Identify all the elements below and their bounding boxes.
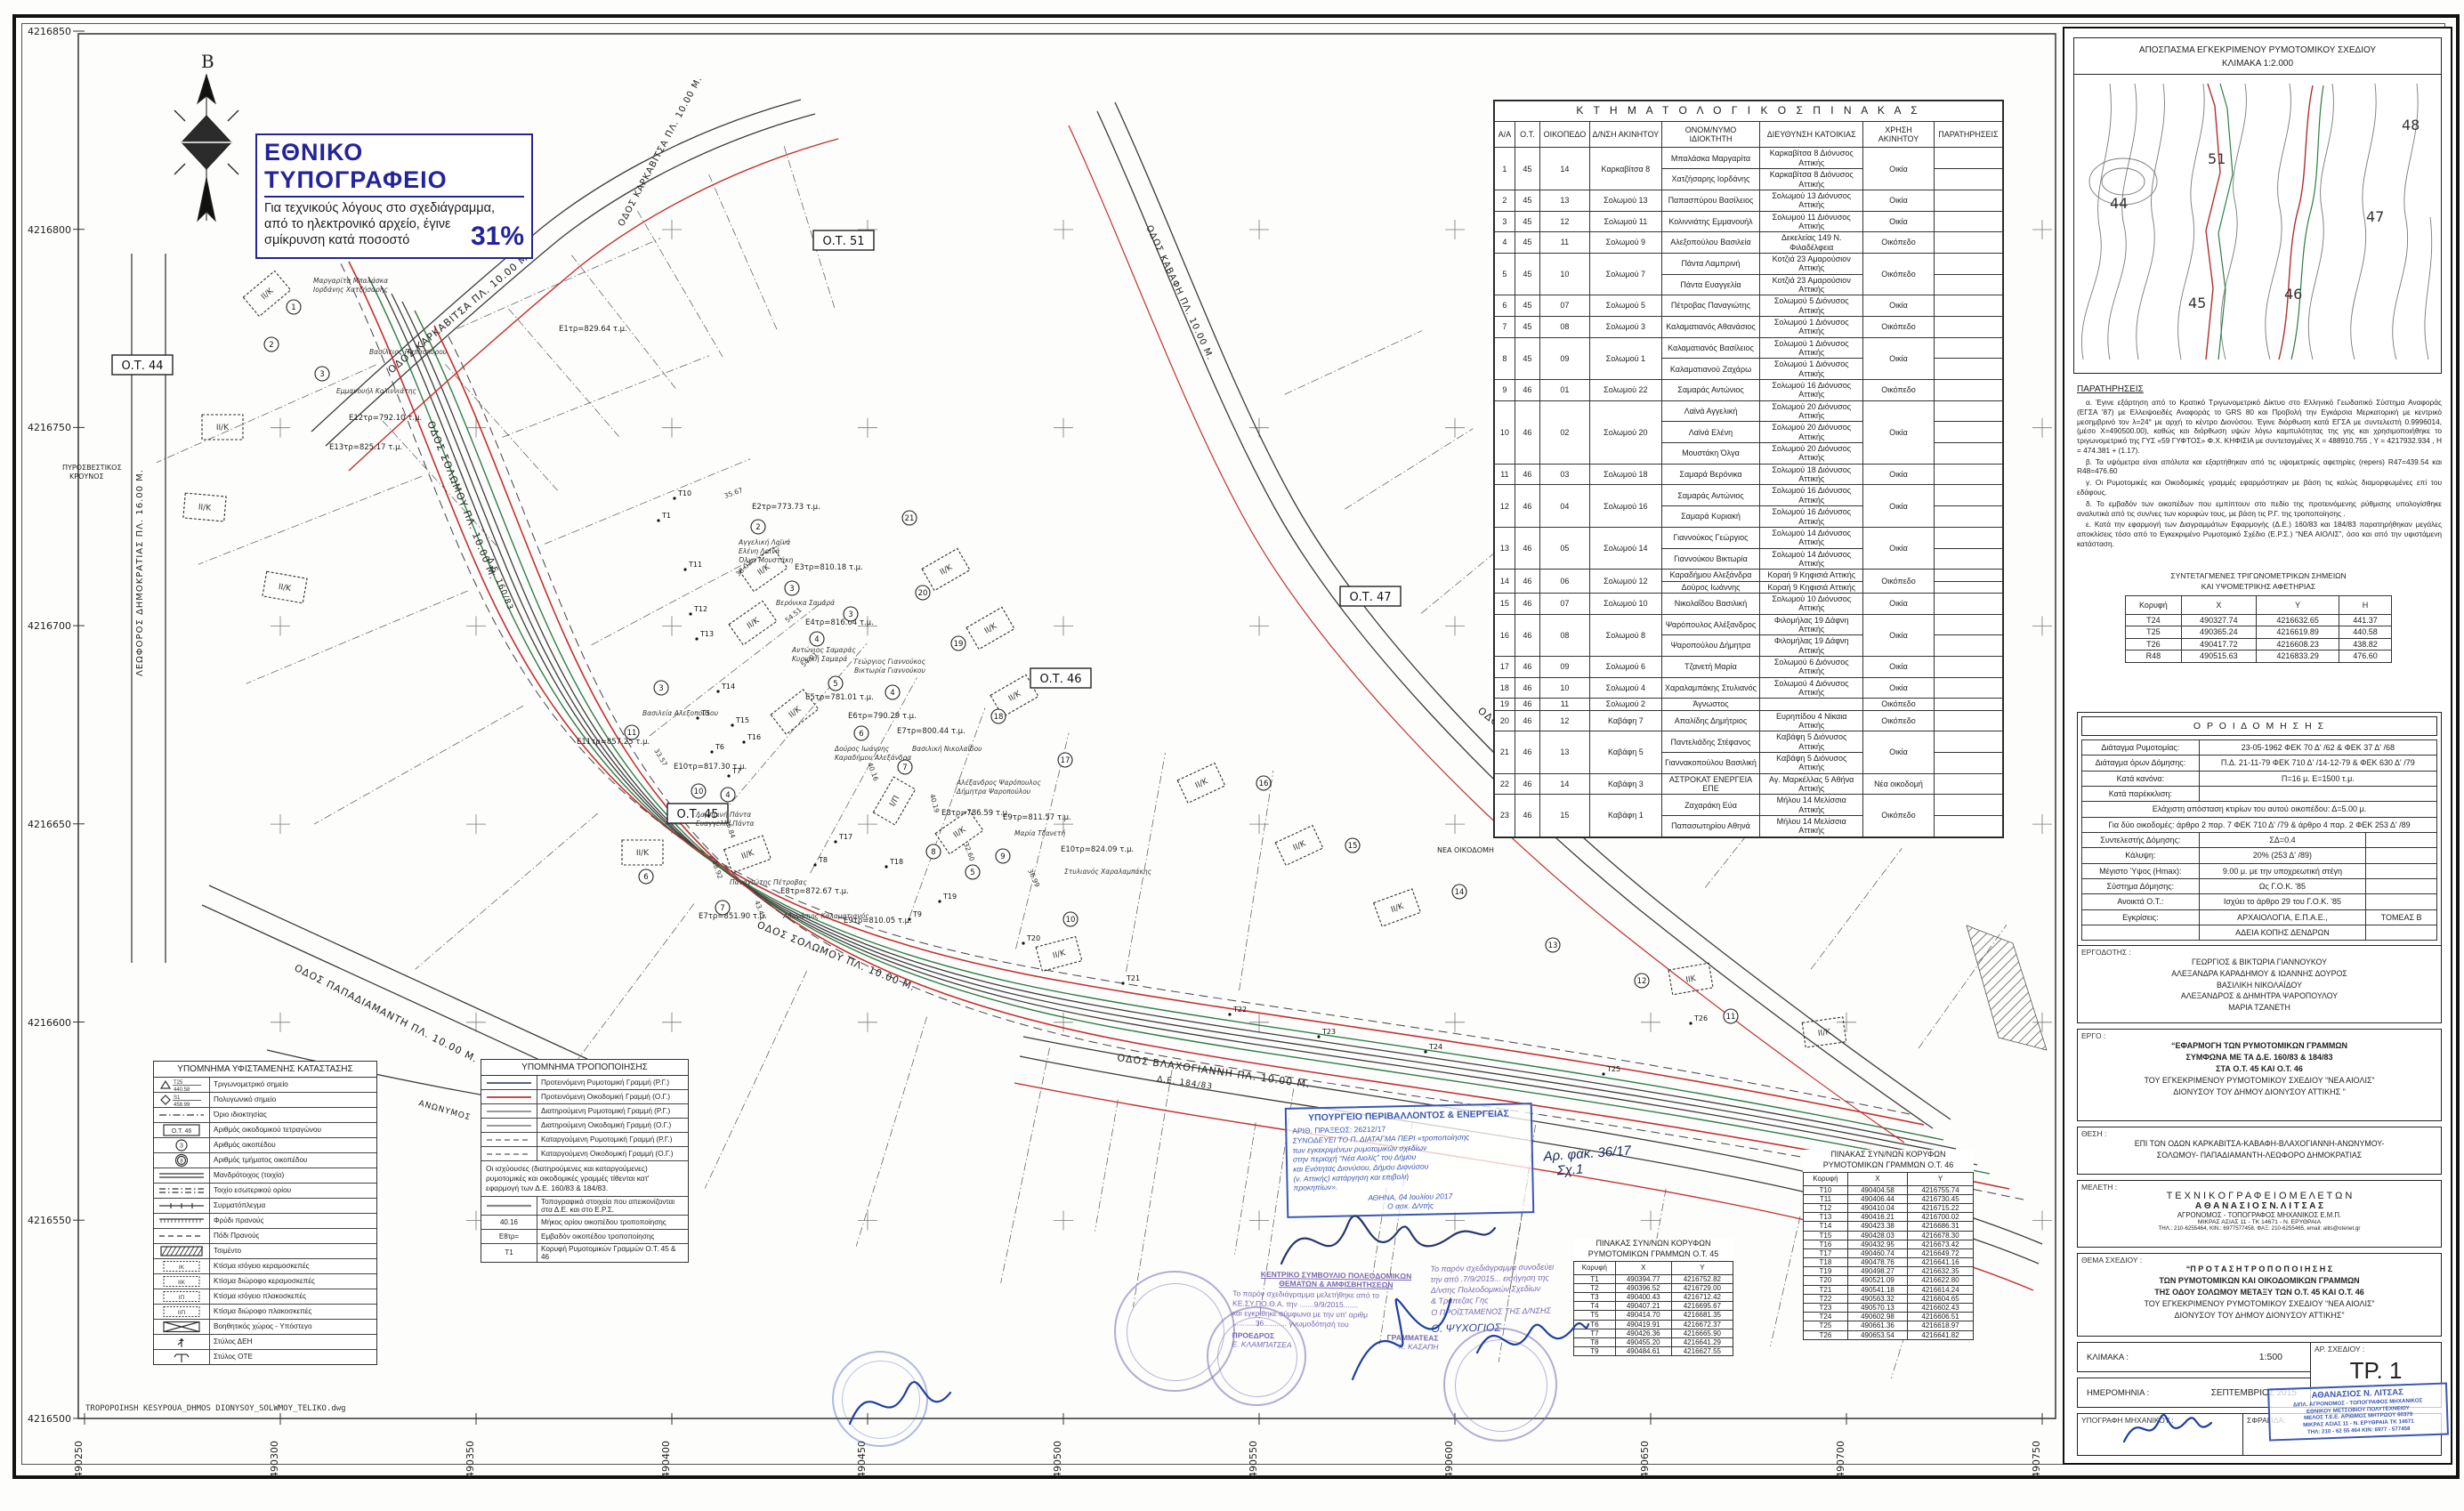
terms-row: Συντελεστής Δόμησης:ΣΔ=0.4 (2082, 833, 2437, 848)
svg-text:19: 19 (954, 640, 964, 649)
excerpt-contour-map: 445148474645 (2074, 75, 2439, 368)
excerpt-block-number: 48 (2402, 117, 2420, 133)
plot-number: 14 (1452, 885, 1466, 899)
area-label: Ε2τρ=773.73 τ.μ. (752, 503, 820, 512)
cadastral-row: 114603Σολωμού 18Σαμαρά ΒερόνικαΣολωμού 1… (1495, 464, 2003, 485)
note-paragraph: δ. Το εμβαδόν των οικοπέδων που εμπίπτου… (2077, 499, 2442, 519)
svg-text:ΙΙ/Κ: ΙΙ/Κ (1052, 949, 1067, 961)
vertex-point: Τ13 (695, 630, 714, 641)
cadastral-row: 224614Καβάφη 3ΑΣΤΡΟΚΑΤ ΕΝΕΡΓΕΙΑ ΕΠΕΑγ. Μ… (1495, 773, 2003, 795)
axis-label-x: 490500 (1052, 1441, 1063, 1478)
text-line: ΑΛΕΞΑΝΔΡΑ ΚΑΡΑΔΗΜΟΥ & ΙΩΑΝΝΗΣ ΔΟΥΡΟΣ (2078, 968, 2441, 980)
area-label: Ε4τρ=816.64 τ.μ. (805, 618, 874, 627)
dashdot-icon (157, 1108, 206, 1122)
note-paragraph: γ. Οι Ρυμοτομικές και Οικοδομικές γραμμέ… (2077, 478, 2442, 497)
vertex-row: Τ25490661.364216618.97 (1804, 1321, 1974, 1330)
text-line: ΤΗΣ ΟΔΟΥ ΣΟΛΩΜΟΥ ΜΕΤΑΞΥ ΤΩΝ Ο.Τ. 45 ΚΑΙ … (2078, 1287, 2441, 1298)
svg-text:8: 8 (931, 848, 935, 857)
legend-item: Διατηρούμενη Ρυμοτομική Γραμμή (Ρ.Γ.) (481, 1104, 688, 1119)
svg-text:ΙΙ/Κ: ΙΙ/Κ (216, 424, 230, 432)
reduction-title: ΕΘΝΙΚΟ ΤΥΠΟΓΡΑΦΕΙΟ (264, 139, 524, 198)
owner-label: Δήμητρα Ψαροπούλου (956, 788, 1031, 796)
vertex-row: Τ11490406.444216730.45 (1804, 1194, 1974, 1203)
deh-icon (157, 1335, 206, 1349)
street-label: ΟΔΟΣ ΒΛΑΧΟΓΙΑΝΝΗ ΠΛ. 10.00 Μ. (1117, 1052, 1312, 1090)
svg-text:ΙΙ/Κ: ΙΙ/Κ (740, 848, 756, 861)
text-line: ΕΠΙ ΤΩΝ ΟΔΩΝ ΚΑΡΚΑΒΙΤΣΑ-ΚΑΒΑΦΗ-ΒΛΑΧΟΓΙΑΝ… (2078, 1138, 2441, 1150)
svg-text:ΙΙ/Κ: ΙΙ/Κ (1390, 901, 1406, 915)
svg-text:ΙΙ/Κ: ΙΙ/Κ (1292, 839, 1308, 853)
dimension-label: 35.67 (723, 486, 744, 500)
trig-row: Τ24490327.744216632.65441.37 (2126, 615, 2392, 626)
svg-text:Τ7: Τ7 (731, 767, 741, 775)
text-line: ΣΥΜΦΩΝΑ ΜΕ ΤΑ Δ.Ε. 160/83 & 184/83 (2078, 1052, 2441, 1063)
legend-item: Τ1Κορυφή Ρυμοτομικών Γραμμών Ο.Τ. 45 & 4… (481, 1244, 688, 1262)
legend-item: Πόδι Πρανούς (154, 1229, 376, 1244)
vertex-row: Τ14490423.384216686.31 (1804, 1222, 1974, 1231)
legend-item: Τοπογραφικά στοιχεία που απεικονίζονται … (481, 1197, 688, 1216)
owner-label: Μαρία Τζανετή (1014, 829, 1065, 837)
svg-text:Τ21: Τ21 (1126, 974, 1140, 982)
scale-box: ΚΛΙΜΑΚΑ : 1:500 (2077, 1342, 2319, 1372)
bldg-icon: ΙΠ (157, 1289, 206, 1304)
area-label: Ε13τρ=825.17 τ.μ. (329, 443, 402, 452)
legend-line-icon (484, 1091, 534, 1103)
text-line: ΤΟΥ ΕΓΚΕΚΡΙΜΕΝΟΥ ΡΥΜΟΤΟΜΙΚΟΥ ΣΧΕΔΙΟΥ “ΝΕ… (2078, 1075, 2441, 1087)
svg-text:Τ16: Τ16 (747, 733, 761, 741)
legend-existing: ΥΠΟΜΝΗΜΑ ΥΦΙΣΤΑΜΕΝΗΣ ΚΑΤΑΣΤΑΣΗΣ Τ25440.5… (153, 1061, 377, 1365)
svg-text:5: 5 (833, 680, 837, 689)
cadastral-row: 74508Σολωμού 3Καλαματιανός ΑθανάσιοςΣολω… (1495, 316, 2003, 337)
vertex-row: Τ24490602.984216606.51 (1804, 1313, 1974, 1321)
plot-number: 2 (751, 520, 765, 534)
legend-item: ΙΙΚΚτίσμα διώροφο κεραμοσκεπές (154, 1274, 376, 1289)
building-footprint: ΙΙ/Κ (724, 836, 772, 873)
vertex-point: Τ21 (1121, 974, 1140, 985)
svg-text:ΙΙ/Κ: ΙΙ/Κ (278, 583, 293, 594)
svg-text:Τ10: Τ10 (677, 489, 691, 497)
street-label: ΟΔΟΣ ΚΑΡΚΑΒΙΤΣΑ ΠΛ. 10.00 Μ. (617, 75, 705, 228)
owner-label: Αντώνιος Σαμαράς (791, 646, 856, 654)
owner-label: Καραδήμου Αλεξάνδρα (835, 754, 911, 762)
svg-text:14: 14 (1455, 888, 1465, 897)
legend-item: Καταργούμενη Ρυμοτομική Γραμμή (Ρ.Γ.) (481, 1133, 688, 1147)
svg-text:6: 6 (643, 873, 648, 882)
svg-text:6: 6 (859, 730, 863, 739)
plot-number: 3 (654, 681, 668, 695)
bldg-icon: ΙΙΠ (157, 1305, 206, 1319)
terms-row: Εγκρίσεις:ΑΡΧΑΙΟΛΟΓΙΑ, Ε.Π.Α.Ε.,ΤΟΜΕΑΣ Β (2082, 909, 2437, 925)
plot-number: 2 (264, 337, 279, 351)
trig-icon: Τ25440.58 (157, 1078, 206, 1092)
drawing-subject-box: ΘΕΜΑ ΣΧΕΔΙΟΥ : “Π Ρ Ο Τ Α Σ Η Τ Ρ Ο Π Ο … (2077, 1253, 2442, 1337)
legend-item: Προτεινόμενη Οικοδομική Γραμμή (Ο.Γ.) (481, 1090, 688, 1104)
vertex-row: Τ16490432.954216673.42 (1804, 1240, 1974, 1248)
terms-row: Κατά παρέκκλιση: (2082, 787, 2437, 802)
cadastral-row: 174609Σολωμού 6Τζανετή ΜαρίαΣολωμού 6 Δι… (1495, 656, 2003, 677)
cadastral-row: 134605Σολωμού 14Γιαννούκος ΓεώργιοςΣολωμ… (1495, 527, 2003, 548)
signature-stamp-row: ΥΠΟΓΡΑΦΗ ΜΗΧΑΝΙΚΟΥ : ΣΦΡΑΓΙΔΑ: ΑΘΑΝΑΣΙΟΣ… (2077, 1413, 2442, 1456)
signature-3 (1468, 1299, 1593, 1379)
legend-line-icon (484, 1077, 534, 1089)
cadastral-row: 14514Καρκαβίτσα 8Μπαλάσκα ΜαργαρίταΚαρκα… (1495, 148, 2003, 169)
svg-text:12: 12 (1637, 977, 1647, 986)
vertex-row: Τ17490460.744216649.72 (1804, 1248, 1974, 1257)
plot-number: 4 (810, 632, 824, 646)
svg-text:ΙΙ/Κ: ΙΙ/Κ (260, 287, 276, 303)
svg-text:18: 18 (994, 713, 1004, 722)
axis-label-y: 4216750 (25, 422, 71, 433)
approved-plan-excerpt: ΑΠΟΣΠΑΣΜΑ ΕΓΚΕΚΡΙΜΕΝΟΥ ΡΥΜΟΤΟΜΙΚΟΥ ΣΧΕΔΙ… (2073, 37, 2442, 374)
dimension-label: 40.16 (866, 762, 880, 782)
svg-text:Τ19: Τ19 (942, 893, 957, 901)
cadastral-row: 144606Σολωμού 12Καραδήμου ΑλεξάνδραΚοραή… (1495, 570, 2003, 581)
folder-note: Αρ. φακ. 36/17 Σχ.1 (1543, 1143, 1633, 1180)
svg-text:Τ15: Τ15 (735, 716, 749, 724)
vertex-row: Τ9490484.614216627.55 (1574, 1347, 1733, 1356)
cadastral-row: 64507Σολωμού 5Πέτροβας ΠαναγιώτηςΣολωμού… (1495, 295, 2003, 317)
block-label: Ο.Τ. 51 (813, 230, 874, 250)
plot-number: 1 (287, 300, 301, 314)
svg-text:21: 21 (905, 514, 915, 523)
svg-text:2: 2 (755, 523, 760, 532)
plot-number: 5 (965, 865, 980, 879)
cadastral-row: 104602Σολωμού 20Λαϊνά ΑγγελικήΣολωμού 20… (1495, 400, 2003, 422)
axis-label-x: 490550 (1248, 1441, 1259, 1478)
legend-item: Τοιχίο εσωτερικού ορίου (154, 1184, 376, 1199)
street-label: ΑΝΩΝΥΜΟΣ (417, 1099, 472, 1122)
svg-text:Τ9: Τ9 (912, 910, 922, 918)
building-footprint: ΙΙ/Κ (729, 601, 777, 644)
vertex-point: Τ10 (673, 489, 691, 500)
legend-item: Μανδρότοιχος (τοιχίο) (154, 1168, 376, 1184)
area-label: Ε9τρ=811.57 τ.μ. (1003, 813, 1071, 822)
owner-label: Ελένη Λαϊνά (739, 547, 780, 555)
cadastral-row: 164608Σολωμού 8Ψαρόπουλος ΑλέξανδροςΦιλο… (1495, 614, 2003, 635)
svg-text:458.99: 458.99 (174, 1103, 190, 1107)
text-line: ΒΑΣΙΛΙΚΗ ΝΙΚΟΛΑΪΔΟΥ (2078, 980, 2441, 991)
axis-label-x: 490650 (1639, 1441, 1651, 1478)
dimension-label: 36.99 (1026, 868, 1041, 888)
svg-text:ΙΙΠ: ΙΙΠ (178, 1310, 186, 1316)
area-label: Ε11τρ=857.25 τ.μ. (577, 738, 650, 747)
svg-text:ΙΙ/Κ: ΙΙ/Κ (746, 616, 762, 631)
plot-number: 6 (854, 726, 868, 740)
scale-value: 1:500 (2259, 1352, 2282, 1362)
legend-line-icon (484, 1105, 534, 1118)
svg-text:11: 11 (1726, 1013, 1736, 1022)
area-label: Ε8τρ=872.67 τ.μ. (780, 887, 849, 896)
dbl-icon (157, 1168, 206, 1183)
owner-label: Βικτωρία Γιαννούκου (854, 667, 926, 675)
trig-coords-table: ΣΥΝΤΕΤΑΓΜΕΝΕΣ ΤΡΙΓΩΝΟΜΕΤΡΙΚΩΝ ΣΗΜΕΙΩΝ ΚΑ… (2125, 571, 2392, 663)
svg-text:Τ11: Τ11 (688, 561, 702, 569)
legend-line-icon (484, 1119, 534, 1132)
svg-text:Ο.Τ. 46: Ο.Τ. 46 (1039, 673, 1081, 686)
map-note-label: ΚΡΟΥΝΟΣ (69, 473, 104, 481)
area-label: Ε8τρ=786.59 τ.μ. (941, 809, 1010, 818)
vertex-row: Τ15490428.034216678.30 (1804, 1231, 1974, 1240)
legend-modification: ΥΠΟΜΝΗΜΑ ΤΡΟΠΟΠΟΙΗΣΗΣ Προτεινόμενη Ρυμοτ… (481, 1059, 689, 1263)
concrete-hatch (1967, 925, 2047, 1050)
svg-text:15: 15 (1348, 842, 1358, 851)
area-label: Ε1τρ=829.64 τ.μ. (559, 325, 627, 334)
note-paragraph: α. Έγινε εξάρτηση από το Κρατικό Τριγωνο… (2077, 398, 2442, 456)
vertex-row: Τ12490410.044216715.22 (1804, 1203, 1974, 1212)
svg-text:Ο.Τ. 47: Ο.Τ. 47 (1349, 591, 1391, 604)
legend-item: ΙΠΚτίσμα ισόγειο πλακοσκεπές (154, 1289, 376, 1305)
svg-text:9: 9 (1000, 852, 1005, 861)
legend-line-icon (484, 1148, 534, 1160)
street-label: Δ.Ε. 184/83 (1157, 1075, 1214, 1092)
area-label: Ε6τρ=790.29 τ.μ. (848, 712, 917, 721)
svg-text:Τ20: Τ20 (1026, 934, 1040, 942)
vertex-point: Τ11 (683, 561, 702, 571)
terms-row: Σύστημα Δόμησης:Ως Γ.Ο.Κ. '85 (2082, 879, 2437, 894)
street-label: ΟΔΟΣ ΠΑΠΑΔΙΑΜΑΝΤΗ ΠΛ. 10.00 Μ. (293, 962, 481, 1065)
plot-number: 3 (315, 367, 329, 381)
text-line: ΣΟΛΩΜΟΥ- ΠΑΠΑΔΙΑΜΑΝΤΗ-ΛΕΩΦΟΡΟ ΔΗΜΟΚΡΑΤΙΑ… (2078, 1150, 2441, 1161)
building-footprint: ΙΙ/Κ (922, 548, 970, 590)
svg-text:Τ6: Τ6 (715, 743, 724, 751)
svg-text:7: 7 (720, 904, 724, 913)
svg-text:4: 4 (814, 635, 819, 644)
area-label: Ε7τρ=800.44 τ.μ. (897, 727, 965, 736)
svg-text:ΙΙ/Κ: ΙΙ/Κ (198, 503, 212, 513)
axis-label-x: 490350 (465, 1441, 476, 1478)
legend-item: Διατηρούμενη Οικοδομική Γραμμή (Ο.Γ.) (481, 1119, 688, 1133)
cadastral-row: 94601Σολωμού 22Σαμαράς ΑντώνιοςΣολωμού 1… (1495, 380, 2003, 401)
plot-number: 4 (721, 788, 735, 802)
svg-text:3: 3 (319, 370, 324, 379)
block-label: Ο.Τ. 47 (1340, 586, 1401, 606)
plot-number: 3 (785, 581, 799, 595)
map-note-label: ΝΕΑ ΟΙΚΟΔΟΜΗ (1437, 846, 1494, 854)
svg-text:Τ17: Τ17 (838, 833, 852, 841)
location-box: ΘΕΣΗ : ΕΠΙ ΤΩΝ ΟΔΩΝ ΚΑΡΚΑΒΙΤΣΑ-ΚΑΒΑΦΗ-ΒΛ… (2077, 1127, 2442, 1175)
table-title: Κ Τ Η Μ Α Τ Ο Λ Ο Γ Ι Κ Ο Σ Π Ι Ν Α Κ Α … (1495, 101, 2003, 122)
svg-text:ΙΚ: ΙΚ (179, 1265, 185, 1271)
xbox-icon (157, 1320, 206, 1334)
svg-text:1: 1 (291, 303, 295, 312)
svg-text:ΙΙΚ: ΙΙΚ (178, 1280, 186, 1286)
owner-label: Στυλιανός Χαραλαμπάκης (1064, 868, 1152, 876)
svg-text:5: 5 (970, 869, 974, 877)
plot-number: 5 (828, 676, 843, 691)
wire-icon (157, 1199, 206, 1213)
owner-label: Μαργαρίτα Μπαλάσκα (313, 277, 388, 285)
terms-row: Μέγιστο Ύψος (Hmax):9.00 μ. με την υποχρ… (2082, 863, 2437, 878)
excerpt-block-number: 45 (2188, 295, 2206, 311)
vertex-point: Τ17 (834, 833, 852, 844)
vertex-point: Τ18 (885, 858, 903, 869)
svg-text:Β: Β (201, 51, 214, 72)
table-header: ΚορυφήΧΥ (1804, 1173, 1974, 1185)
building-footprint: ΙΙ/Κ (1177, 764, 1225, 804)
reduction-note: ΕΘΝΙΚΟ ΤΥΠΟΓΡΑΦΕΙΟ Για τεχνικούς λόγους … (255, 133, 533, 259)
vertex-row: Τ10490404.584216755.74 (1804, 1185, 1974, 1194)
terms-row: Κατά κανόνα:Π=16 μ. Ε=1500 τ.μ. (2082, 771, 2437, 786)
dimension-label: 40.19 (928, 793, 941, 813)
owner-label: Αγγελική Λαϊνά (738, 538, 790, 546)
vertex-point: Τ25 (1602, 1065, 1620, 1076)
cadastral-row: 34512Σολωμού 11Κολιννιάτης ΕμμανουήλΣολω… (1495, 211, 2003, 232)
trig-row: R48490515.634216833.29476.60 (2126, 650, 2392, 662)
dashed-icon (157, 1229, 206, 1243)
block-label: Ο.Τ. 46 (1030, 668, 1091, 688)
area-label: Ε10τρ=824.09 τ.μ. (1061, 845, 1134, 854)
legend-item: 3Αριθμός οικοπέδου (154, 1138, 376, 1153)
text-line: ΔΙΟΝΥΣΟΥ ΤΟΥ ΔΗΜΟΥ ΔΙΟΝΥΣΟΥ ΑΤΤΙΚΗΣ ” (2078, 1087, 2441, 1098)
drawing-sheet: Β ΙΙ/ΚΙΙ/ΚΙΙ/ΚΙΙ/ΚΙΙ/ΚΙΙ/ΚΙ/ΠΙΙ/ΚΙΙ/ΚΙΙ/… (0, 0, 2464, 1511)
vertex-point: Τ20 (1022, 934, 1040, 945)
cadastral-row: 234615Καβάφη 1Ζαχαράκη ΕύαΜήλου 14 Μελίσ… (1495, 795, 2003, 816)
terms-row: Διάταγμα όρων Δόμησης:Π.Δ. 21-11-79 ΦΕΚ … (2082, 755, 2437, 771)
plot-number: 7 (898, 760, 912, 774)
vertex-row: Τ23490570.134216602.43 (1804, 1304, 1974, 1313)
plot-number: 6 (639, 869, 653, 884)
topo-line-icon (484, 1200, 534, 1212)
vertex-point: Τ26 (1689, 1014, 1708, 1025)
otbox-icon: Ο.Τ. 46 (157, 1123, 206, 1137)
owner-label: Βερόνικα Σαμαρά (776, 599, 835, 607)
cadastral-row: 204612Καβάφη 7Απαλίδης ΔημήτριοςΕυρηπίδο… (1495, 710, 2003, 731)
cadastral-row: 84509Σολωμού 1Καλαματιανός ΒασίλειοςΣολω… (1495, 337, 2003, 359)
plot-number: 7 (715, 901, 730, 915)
vertex-point: Τ12 (689, 605, 707, 616)
cadastral-row: 214613Καβάφη 5Παντελιάδης ΣτέφανοςΚαβάφη… (1495, 731, 2003, 753)
street-label: ΟΔΟΣ ΣΟΛΩΜΟΥ ΠΛ. 10.00 Μ. (424, 419, 499, 581)
svg-text:10: 10 (694, 788, 704, 796)
svg-text:440.58: 440.58 (174, 1087, 190, 1092)
dimension-label: 48.92 (710, 860, 724, 880)
text-line: ΓΕΩΡΓΙΟΣ & ΒΙΚΤΩΡΙΑ ΓΙΑΝΝΟΥΚΟΥ (2078, 957, 2441, 968)
svg-text:20: 20 (918, 589, 928, 598)
building-footprint: ΙΙ/Κ (622, 840, 663, 865)
study-office-box: ΜΕΛΕΤΗ : Τ Ε Χ Ν Ι Κ Ο Γ Ρ Α Φ Ε Ι Ο Μ Ε… (2077, 1180, 2442, 1248)
building-footprint: ΙΙ/Κ (1275, 826, 1323, 866)
axis-label-x: 490300 (269, 1441, 280, 1478)
svg-text:Τ14: Τ14 (721, 683, 735, 691)
svg-text:Τ23: Τ23 (1321, 1028, 1336, 1036)
legend-item: S1458.99Πολυγωνικό σημείο (154, 1093, 376, 1108)
vertex-row: Τ20490521.094216622.80 (1804, 1276, 1974, 1285)
legend-item: Τσιμέντο (154, 1244, 376, 1259)
svg-text:Τ24: Τ24 (1428, 1043, 1442, 1051)
round-stamp-2 (1207, 1306, 1306, 1406)
axis-label-y: 4216500 (25, 1413, 71, 1425)
note-paragraph: β. Τα υψόμετρα είναι απόλυτα και εξαρτήθ… (2077, 457, 2442, 477)
text-line: ΤΩΝ ΡΥΜΟΤΟΜΙΚΩΝ ΚΑΙ ΟΙΚΟΔΟΜΙΚΩΝ ΓΡΑΜΜΩΝ (2078, 1275, 2441, 1287)
circle1-icon: 3 (157, 1138, 206, 1152)
note-paragraph: ε. Κατά την εφαρμογή των Διαγραμμάτων Εφ… (2077, 520, 2442, 548)
circle2-icon: 8 (157, 1153, 206, 1168)
svg-text:ΙΙ/Κ: ΙΙ/Κ (756, 562, 772, 578)
svg-text:10: 10 (1066, 916, 1076, 925)
cadastral-row: 194611Σολωμού 2ΆγνωστοςΟικόπεδο (1495, 699, 2003, 710)
plot-number: 4 (885, 685, 900, 699)
vertex-point: Τ19 (938, 893, 957, 903)
legend-item: Φρύδι πρανούς (154, 1214, 376, 1229)
svg-text:2: 2 (269, 341, 273, 350)
legend-item: Όριο ιδιοκτησίας (154, 1108, 376, 1123)
vertex-point: Τ15 (731, 716, 749, 727)
svg-text:3: 3 (789, 585, 794, 594)
terms-row: Κάλυψη:20% (253 Δ' /89) (2082, 848, 2437, 863)
signature-4 (836, 1353, 961, 1450)
svg-text:ΙΙ/Κ: ΙΙ/Κ (1194, 777, 1210, 791)
svg-text:Τ13: Τ13 (699, 630, 714, 638)
legend-item: ΙΚΚτίσμα ισόγειο κεραμοσκεπές (154, 1259, 376, 1274)
svg-text:ΙΙ/Κ: ΙΙ/Κ (939, 562, 955, 577)
legend-item: 8Αριθμός τμήματος οικοπέδου (154, 1153, 376, 1168)
signature-2 (1335, 1273, 1468, 1406)
axis-label-x: 490750 (2031, 1441, 2042, 1478)
svg-text:Τ5: Τ5 (700, 709, 710, 717)
text-line: ΔΙΟΝΥΣΟΥ ΤΟΥ ΔΗΜΟΥ ΔΙΟΝΥΣΟΥ ΑΤΤΙΚΗΣ” (2078, 1310, 2441, 1321)
street-label: ΛΕΩΦΟΡΟΣ ΔΗΜΟΚΡΑΤΙΑΣ ΠΛ. 16.00 Μ. (135, 469, 145, 676)
brow-icon (157, 1214, 206, 1228)
axis-label-x: 490250 (73, 1441, 85, 1478)
dimension-label: 54.51 (784, 606, 804, 625)
vertex-point: Τ1 (657, 512, 671, 522)
svg-text:Ι/Π: Ι/Π (888, 795, 901, 809)
vertex-table-ot46: ΠΙΝΑΚΑΣ ΣΥΝ/ΝΩΝ ΚΟΡΥΦΩΝ ΡΥΜΟΤΟΜΙΚΩΝ ΓΡΑΜ… (1803, 1150, 1974, 1340)
svg-text:7: 7 (902, 764, 907, 772)
table-header: Α/ΑΟ.Τ.ΟΙΚΟΠΕΔΟΔ/ΝΣΗ ΑΚΙΝΗΤΟΥΟΝΟΜ/ΝΥΜΟ Ι… (1495, 121, 2003, 148)
vertex-row: Τ21490541.184216614.24 (1804, 1285, 1974, 1294)
svg-text:ΙΠ: ΙΠ (179, 1295, 185, 1301)
svg-text:16: 16 (1259, 780, 1269, 788)
svg-text:Ο.Τ. 44: Ο.Τ. 44 (121, 360, 163, 373)
svg-text:3: 3 (180, 1143, 183, 1150)
excerpt-block-number: 47 (2366, 208, 2384, 225)
vertex-row: Τ13490416.214216700.02 (1804, 1213, 1974, 1222)
area-label: Ε3τρ=810.18 τ.μ. (795, 563, 863, 572)
svg-text:ΙΙΚ: ΙΙΚ (1685, 974, 1698, 985)
vertex-row: Τ26490653.544216641.82 (1804, 1330, 1974, 1339)
plot-number: 15 (1345, 838, 1360, 852)
vertex-point: Τ6 (710, 743, 724, 754)
street-label: Δ.Ε. 160/83 (485, 556, 514, 611)
cadastral-row: 24513Σολωμού 13Παπασπύρου ΒασίλειοςΣολωμ… (1495, 190, 2003, 211)
file-note: TROPOPOIHSH KESYPOUA_DHMOS DIONYSOY_SOLW… (85, 1404, 346, 1413)
vertex-point: Τ22 (1228, 1006, 1247, 1016)
axis-label-x: 490400 (660, 1441, 672, 1478)
plot-number: 13 (1546, 938, 1560, 952)
block-label: Ο.Τ. 44 (112, 355, 173, 375)
plot-number: 19 (951, 636, 965, 650)
owner-label: Αλέξανδρος Ψαρόπουλος (956, 779, 1041, 787)
svg-text:Τ22: Τ22 (1232, 1006, 1247, 1014)
vertex-row: Τ18490478.764216641.16 (1804, 1258, 1974, 1267)
bldg-icon: ΙΚ (157, 1259, 206, 1273)
building-footprint: ΙΙ/Κ (1036, 937, 1082, 972)
table-header: ΚορυφήΧΥΗ (2126, 595, 2392, 614)
project-box: ΕΡΓΟ : “ΕΦΑΡΜΟΓΗ ΤΩΝ ΡΥΜΟΤΟΜΙΚΩΝ ΓΡΑΜΜΩΝ… (2077, 1029, 2442, 1121)
legend-item: Στύλος ΔΕΗ (154, 1335, 376, 1350)
building-terms: Ο Ρ Ο Ι Δ Ο Μ Η Σ Η Σ Διάταγμα Ρυμοτομία… (2077, 712, 2442, 946)
svg-text:ΙΙ/Κ: ΙΙ/Κ (952, 825, 968, 840)
map-note-label: ΠΥΡΟΣΒΕΣΤΙΚΟΣ (62, 464, 122, 472)
legend-item: Συρματόπλεγμα (154, 1199, 376, 1214)
vertex-row: Τ8490455.204216641.29 (1574, 1337, 1733, 1346)
axis-label-x: 490700 (1835, 1441, 1846, 1478)
street-label: ΟΔΟΣ ΚΑΒΑΦΗ ΠΛ. 10.00 Μ. (1143, 224, 1215, 362)
cadastral-row: 184610Σολωμού 4Χαραλαμπάκης ΣτυλιανόςΣολ… (1495, 677, 2003, 699)
terms-row: Ανοικτά Ο.Τ.:Ισχύει το άρθρο 29 του Γ.Ο.… (2082, 894, 2437, 909)
building-footprint: ΙΙ/Κ (966, 607, 1014, 649)
